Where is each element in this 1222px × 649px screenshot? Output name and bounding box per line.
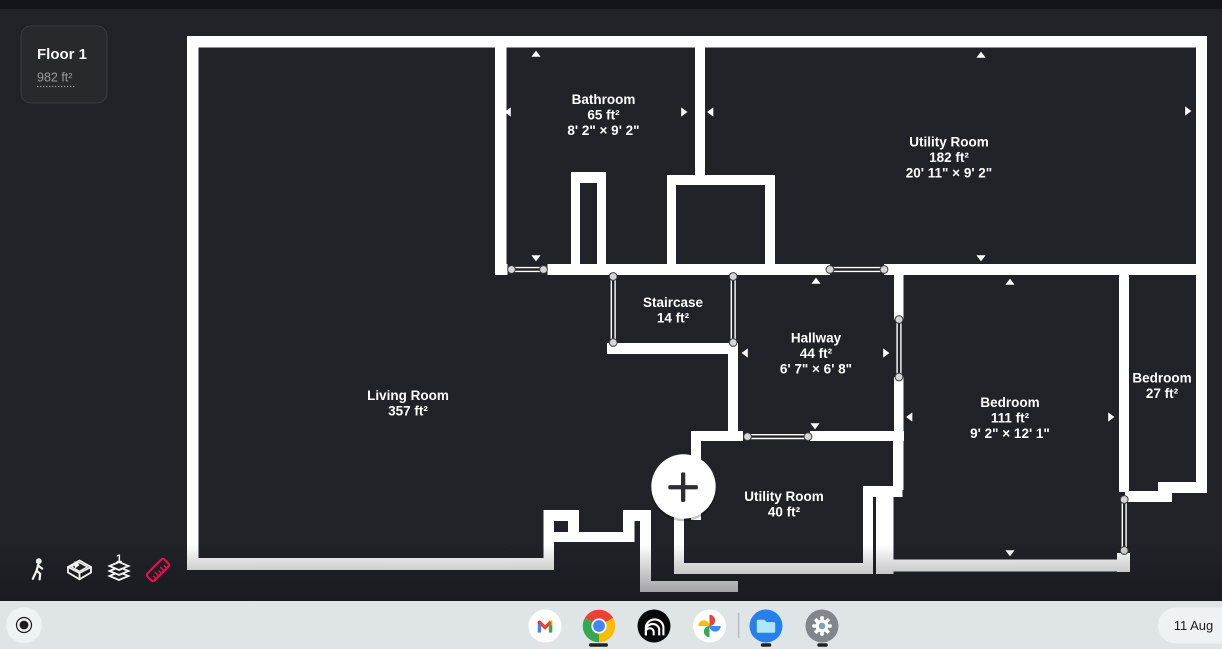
svg-text:20' 11" × 9' 2": 20' 11" × 9' 2" xyxy=(906,165,992,180)
svg-text:Utility Room: Utility Room xyxy=(744,489,824,504)
svg-text:Floor 1: Floor 1 xyxy=(37,46,87,63)
svg-text:40 ft²: 40 ft² xyxy=(768,504,801,519)
svg-text:Bathroom: Bathroom xyxy=(572,92,636,107)
svg-text:11 Aug: 11 Aug xyxy=(1174,618,1214,633)
svg-text:Living Room: Living Room xyxy=(367,388,449,403)
svg-text:Hallway: Hallway xyxy=(791,330,842,345)
svg-text:44 ft²: 44 ft² xyxy=(800,346,833,361)
svg-text:357 ft²: 357 ft² xyxy=(388,403,428,418)
svg-text:9' 2" × 12' 1": 9' 2" × 12' 1" xyxy=(970,426,1050,441)
svg-text:65 ft²: 65 ft² xyxy=(587,107,620,122)
svg-text:982 ft²: 982 ft² xyxy=(37,71,72,85)
svg-text:8' 2" × 9' 2": 8' 2" × 9' 2" xyxy=(567,123,639,138)
svg-text:182 ft²: 182 ft² xyxy=(929,150,969,165)
svg-text:Staircase: Staircase xyxy=(643,295,704,310)
svg-text:6' 7" × 6' 8": 6' 7" × 6' 8" xyxy=(780,361,852,376)
svg-text:111 ft²: 111 ft² xyxy=(991,410,1030,425)
svg-text:Utility Room: Utility Room xyxy=(909,134,989,149)
svg-text:Bedroom: Bedroom xyxy=(1132,370,1191,385)
svg-text:14 ft²: 14 ft² xyxy=(657,310,690,325)
svg-text:27 ft²: 27 ft² xyxy=(1146,386,1179,401)
svg-text:Bedroom: Bedroom xyxy=(980,395,1039,410)
svg-text:1: 1 xyxy=(116,553,122,565)
